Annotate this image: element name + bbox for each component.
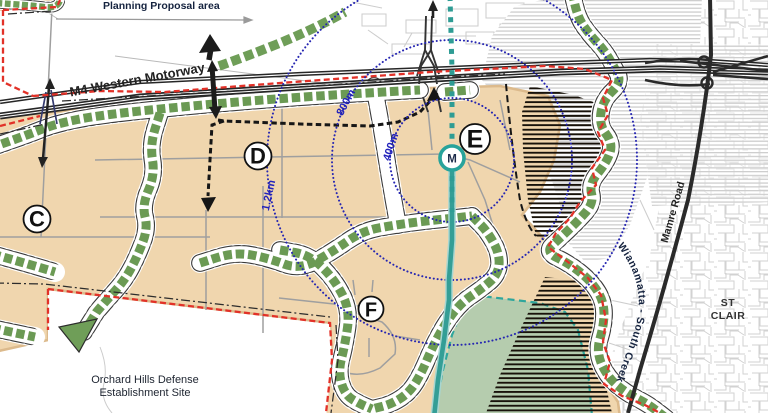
svg-text:Orchard Hills Defense: Orchard Hills Defense <box>91 374 199 386</box>
svg-text:C: C <box>29 207 45 232</box>
svg-text:CLAIR: CLAIR <box>711 310 746 322</box>
svg-text:Establishment Site: Establishment Site <box>99 387 190 399</box>
svg-text:F: F <box>365 300 377 322</box>
svg-text:Planning Proposal area: Planning Proposal area <box>103 0 220 12</box>
svg-text:M: M <box>447 154 457 166</box>
svg-text:E: E <box>467 126 484 154</box>
svg-text:ST: ST <box>721 297 736 309</box>
svg-text:D: D <box>250 144 266 169</box>
